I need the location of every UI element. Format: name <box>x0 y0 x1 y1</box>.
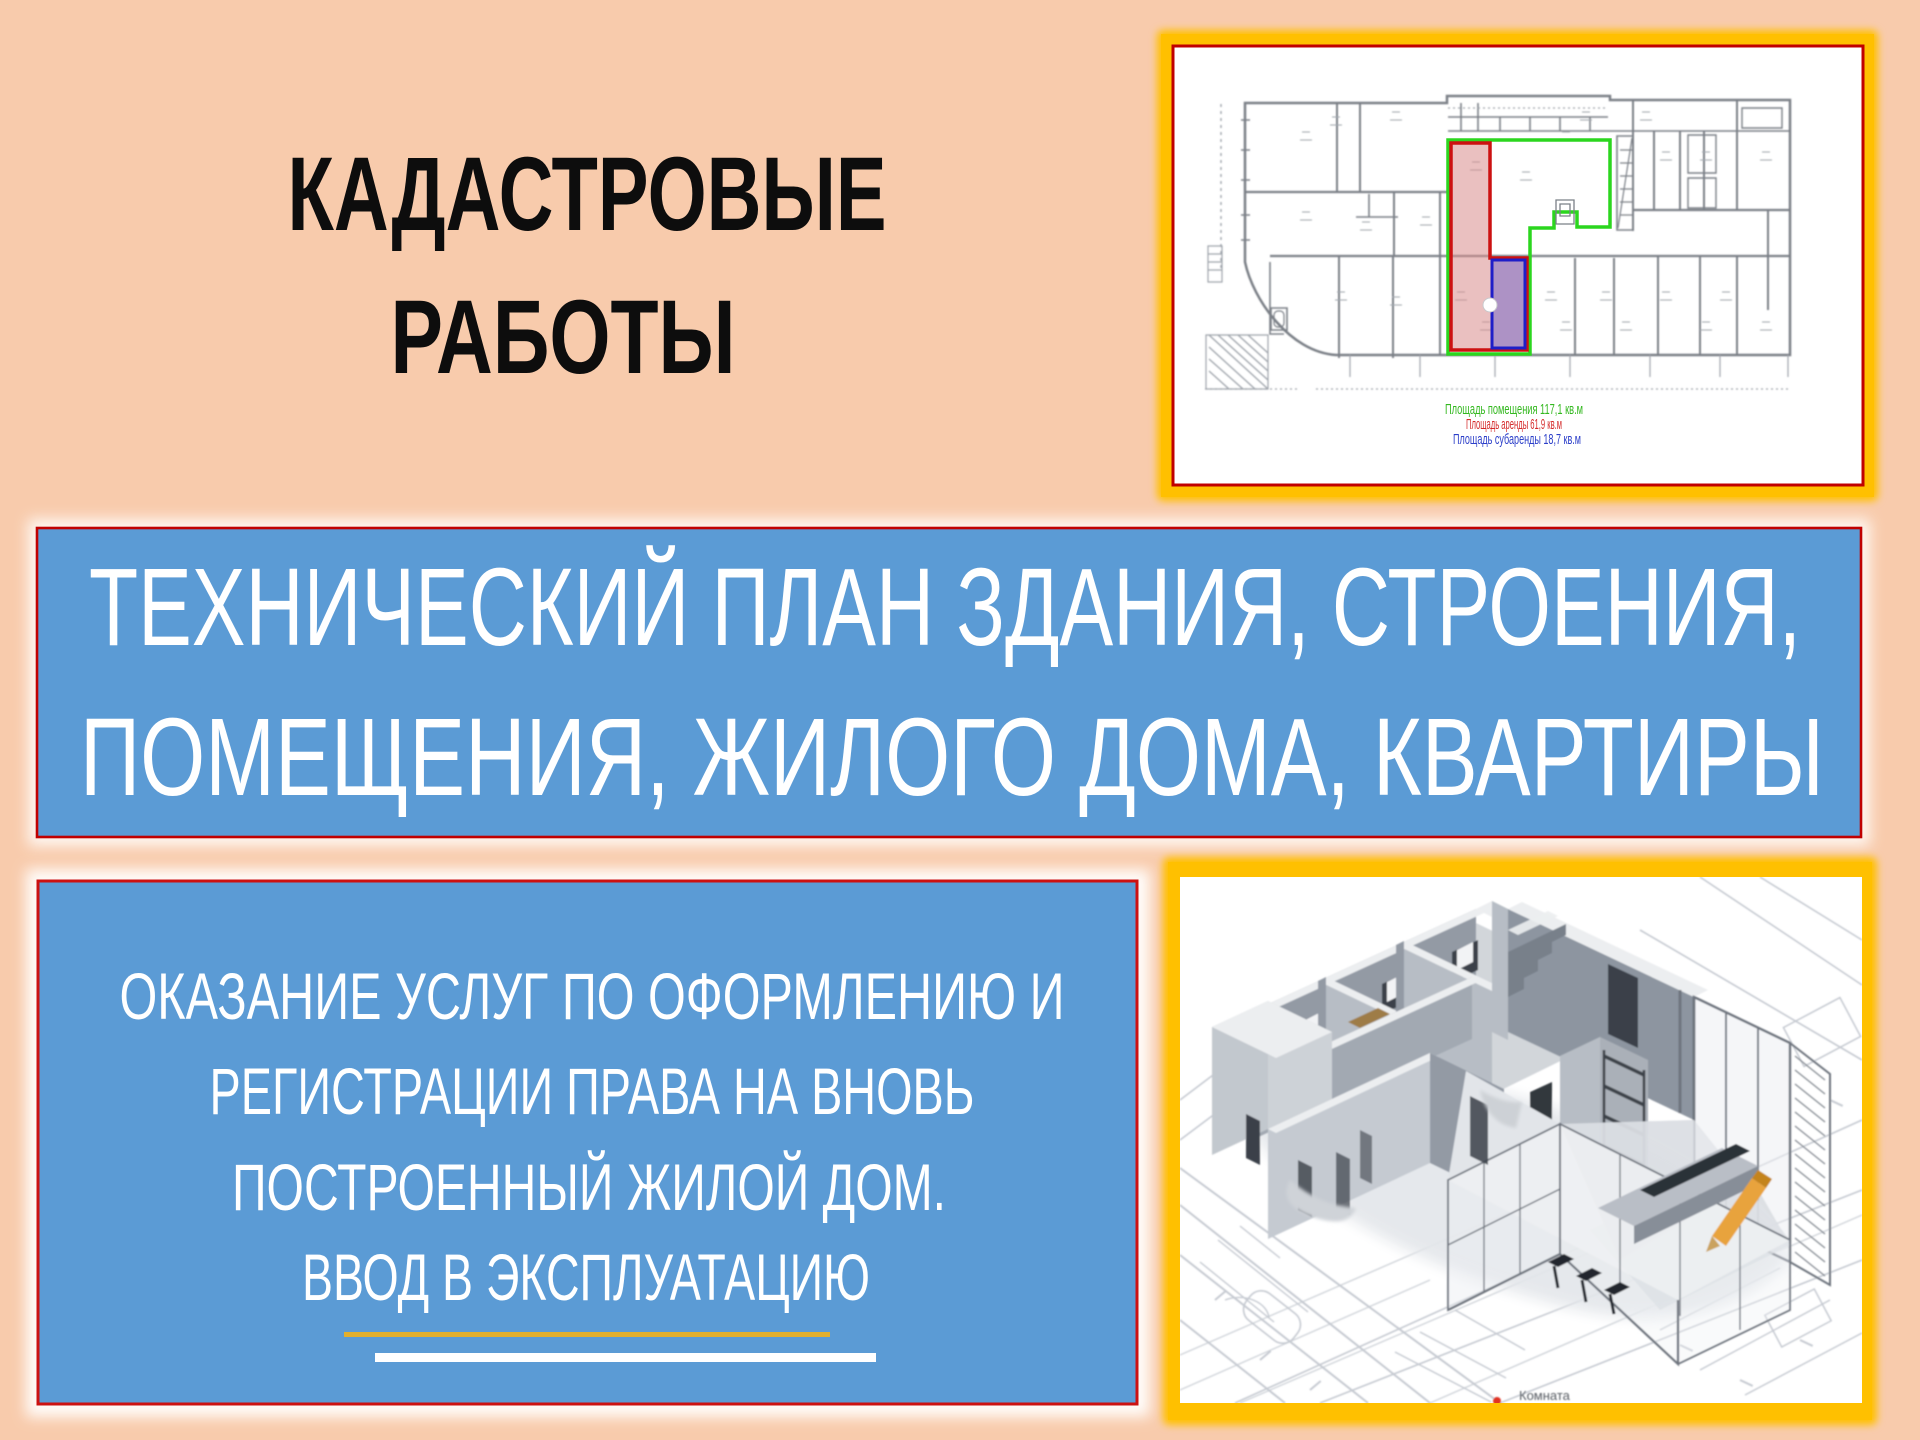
svg-text:КАДАСТРОВЫЕ: КАДАСТРОВЫЕ <box>288 136 887 253</box>
svg-text:Площадь субаренды 18,7 кв.м: Площадь субаренды 18,7 кв.м <box>1453 431 1581 448</box>
svg-text:ПОМЕЩЕНИЯ, ЖИЛОГО ДОМА, КВАРТИ: ПОМЕЩЕНИЯ, ЖИЛОГО ДОМА, КВАРТИРЫ <box>80 696 1824 819</box>
svg-text:ОКАЗАНИЕ УСЛУГ ПО ОФОРМЛЕНИЮ И: ОКАЗАНИЕ УСЛУГ ПО ОФОРМЛЕНИЮ И <box>120 959 1065 1033</box>
svg-text:РАБОТЫ: РАБОТЫ <box>391 279 736 396</box>
svg-text:Комната: Комната <box>1519 1388 1571 1403</box>
svg-text:РЕГИСТРАЦИИ ПРАВА НА ВНОВЬ: РЕГИСТРАЦИИ ПРАВА НА ВНОВЬ <box>210 1054 975 1128</box>
svg-text:ТЕХНИЧЕСКИЙ ПЛАН ЗДАНИЯ, СТРОЕ: ТЕХНИЧЕСКИЙ ПЛАН ЗДАНИЯ, СТРОЕНИЯ, <box>89 546 1801 669</box>
svg-text:ПОСТРОЕННЫЙ ЖИЛОЙ ДОМ.: ПОСТРОЕННЫЙ ЖИЛОЙ ДОМ. <box>232 1149 946 1224</box>
svg-text:ВВОД В ЭКСПЛУАТАЦИЮ: ВВОД В ЭКСПЛУАТАЦИЮ <box>302 1240 870 1314</box>
